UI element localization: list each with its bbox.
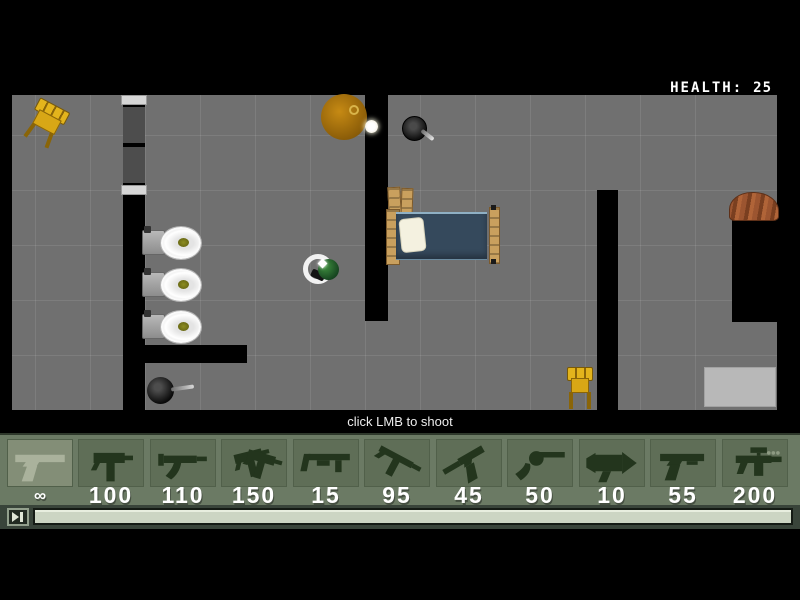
ammo-count: 50 — [504, 483, 576, 507]
game-screen: HEALTH:25 — [0, 0, 800, 600]
chair-leg — [569, 392, 573, 409]
wall-right-vertical — [597, 190, 618, 410]
weapon-slot-combat-pistol[interactable] — [650, 439, 716, 487]
bed-knob — [491, 259, 496, 264]
wall-closet-right — [732, 217, 777, 322]
ammo-count: 200 — [719, 483, 791, 507]
revolver-icon — [510, 441, 570, 485]
chair-leg — [587, 392, 591, 409]
progress-bar — [33, 508, 793, 525]
weapon-slot-dual-uzis[interactable] — [221, 439, 287, 487]
toilet-water — [178, 322, 189, 331]
weapon-slot-desert-eagle[interactable] — [7, 439, 73, 487]
ammo-count: 15 — [290, 483, 362, 507]
toilet-knob — [144, 226, 151, 233]
round-table — [321, 94, 367, 140]
mp5-icon — [153, 441, 213, 485]
weapon-slot-tec9[interactable] — [364, 439, 430, 487]
weapon-slot-shotgun[interactable] — [293, 439, 359, 487]
weapon-slot-scoped-rifle[interactable] — [722, 439, 788, 487]
uzi-icon — [81, 441, 141, 485]
playbar — [0, 505, 800, 529]
weapon-slot-mp5[interactable] — [150, 439, 216, 487]
ammo-count: 55 — [647, 483, 719, 507]
silenced-pistol-icon — [439, 441, 499, 485]
desert-eagle-icon — [10, 441, 70, 485]
chair-bottom-right — [567, 367, 593, 409]
rocket-launcher-icon — [582, 441, 642, 485]
door-top — [121, 95, 147, 105]
floor-mat — [705, 368, 775, 406]
weapon-slot-rocket-launcher[interactable] — [579, 439, 645, 487]
toilet-knob — [144, 268, 151, 275]
ammo-count: 95 — [361, 483, 433, 507]
game-viewport[interactable] — [12, 95, 777, 410]
enemy-character-bottom — [147, 377, 197, 405]
door-bottom — [121, 185, 147, 195]
weapon-slot-silenced-pistol[interactable] — [436, 439, 502, 487]
bed-knob — [491, 205, 496, 210]
chair-leg — [45, 132, 54, 148]
enemy-gun — [171, 384, 194, 391]
ammo-count: 150 — [218, 483, 290, 507]
combat-pistol-icon — [653, 441, 713, 485]
ammo-count: 110 — [147, 483, 219, 507]
ammo-count: 10 — [576, 483, 648, 507]
bed-pillow — [398, 217, 426, 253]
progress-fill — [35, 510, 791, 523]
weapon-slot-uzi[interactable] — [78, 439, 144, 487]
table-item — [349, 105, 359, 115]
tec9-icon — [367, 441, 427, 485]
health-display: HEALTH:25 — [670, 80, 772, 96]
door-panel — [123, 147, 145, 183]
wood-pile — [729, 192, 779, 221]
toilet-water — [178, 238, 189, 247]
wall-bottom-left — [144, 345, 247, 363]
ammo-count: 100 — [75, 483, 147, 507]
weapon-bar: ∞ 100 110 150 15 95 45 50 10 55 200 — [0, 433, 800, 505]
toilet-knob — [144, 310, 151, 317]
skip-button[interactable] — [7, 508, 29, 526]
toilet-bowl — [161, 311, 201, 343]
shotgun-icon — [296, 441, 356, 485]
weapon-slot-revolver[interactable] — [507, 439, 573, 487]
table-lamp — [365, 120, 378, 133]
toilet-water — [178, 280, 189, 289]
ammo-count: 45 — [433, 483, 505, 507]
health-label: HEALTH: — [670, 80, 743, 96]
bed — [386, 187, 502, 251]
toilet — [142, 226, 200, 256]
enemy-character-top — [402, 116, 432, 146]
toilet-bowl — [161, 227, 201, 259]
enemy-body — [147, 377, 174, 404]
chair-top-left — [20, 97, 72, 153]
chair-seat — [571, 378, 589, 393]
toilet-bowl — [161, 269, 201, 301]
hint-text: click LMB to shoot — [0, 414, 800, 429]
toilet — [142, 310, 200, 340]
chair-leg — [23, 122, 36, 137]
dual-uzis-icon — [224, 441, 284, 485]
door-panel — [123, 107, 145, 143]
bed-footboard — [489, 207, 500, 264]
play-skip-icon — [12, 512, 24, 522]
scoped-rifle-icon — [725, 441, 785, 485]
toilet — [142, 268, 200, 298]
health-value: 25 — [753, 80, 772, 96]
